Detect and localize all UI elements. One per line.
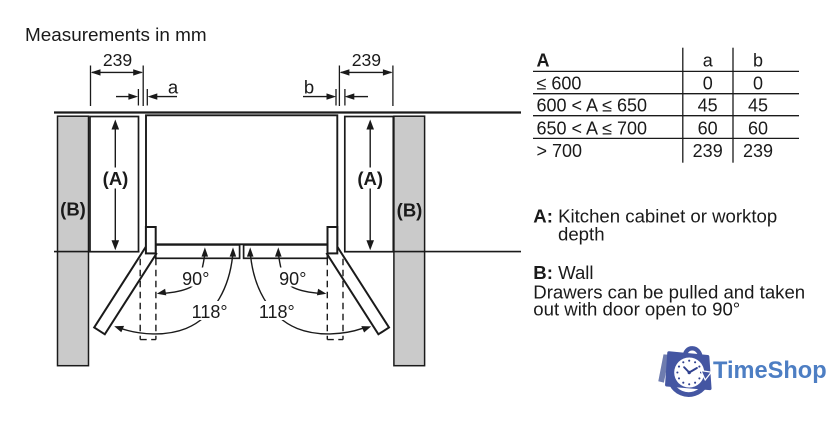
svg-text:600 < A ≤ 650: 600 < A ≤ 650 <box>537 96 647 116</box>
svg-text:239: 239 <box>103 50 132 70</box>
svg-text:60: 60 <box>748 118 768 138</box>
svg-text:B: Wall: B: Wall <box>533 262 593 283</box>
svg-text:a: a <box>703 51 714 71</box>
svg-text:118°: 118° <box>192 302 228 322</box>
svg-text:0: 0 <box>703 73 713 93</box>
svg-text:0: 0 <box>753 73 763 93</box>
svg-text:60: 60 <box>698 118 718 138</box>
svg-text:45: 45 <box>698 96 718 116</box>
svg-text:≤ 600: ≤ 600 <box>537 73 582 93</box>
svg-text:(A): (A) <box>103 168 129 189</box>
svg-text:90°: 90° <box>279 269 306 289</box>
svg-text:out with door open to 90°: out with door open to 90° <box>533 299 740 320</box>
svg-text:239: 239 <box>743 141 773 161</box>
svg-text:b: b <box>753 51 763 71</box>
svg-text:> 700: > 700 <box>537 141 583 161</box>
svg-text:b: b <box>304 77 314 98</box>
svg-text:45: 45 <box>748 96 768 116</box>
svg-text:Measurements in mm: Measurements in mm <box>25 25 207 46</box>
svg-text:(A): (A) <box>357 168 383 189</box>
svg-text:A: A <box>537 51 550 71</box>
svg-text:(B): (B) <box>397 200 423 221</box>
svg-text:90°: 90° <box>182 269 209 289</box>
svg-text:239: 239 <box>352 50 381 70</box>
svg-text:a: a <box>168 77 179 98</box>
svg-text:118°: 118° <box>259 302 295 322</box>
svg-text:(B): (B) <box>60 199 86 220</box>
svg-text:TimeShop: TimeShop <box>713 358 827 384</box>
svg-text:depth: depth <box>558 224 605 245</box>
svg-text:650 < A ≤ 700: 650 < A ≤ 700 <box>537 118 647 138</box>
svg-text:239: 239 <box>693 141 723 161</box>
